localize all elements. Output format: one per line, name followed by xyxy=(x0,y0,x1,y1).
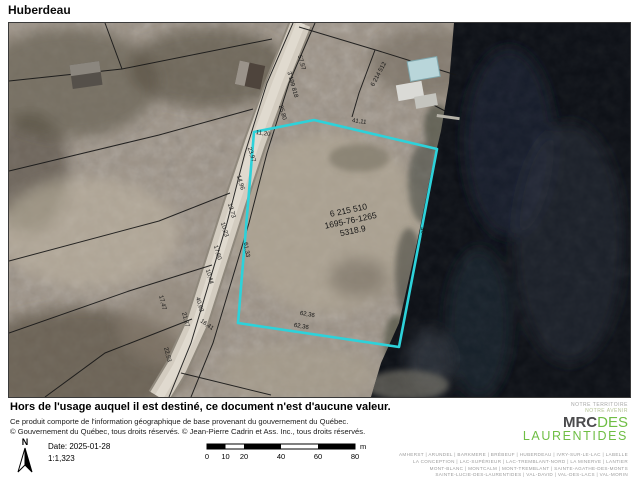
scalebar-tick: 0 xyxy=(205,452,209,461)
disclaimer-text: Hors de l'usage auquel il est destiné, c… xyxy=(10,401,391,413)
aerial-map: 6 215 510 1695-76-1265 5318.9 6 214 512 … xyxy=(9,23,630,397)
scalebar-tick: 80 xyxy=(351,452,359,461)
page-title: Huberdeau xyxy=(8,3,71,17)
municipality-line: AMHERST | ARUNDEL | BARKMERE | BRÉBEUF |… xyxy=(399,452,628,459)
credit-line-2: © Gouvernement du Québec, tous droits ré… xyxy=(10,427,365,437)
scalebar-unit: m xyxy=(360,442,366,451)
scalebar-tick: 10 xyxy=(221,452,229,461)
municipality-line: LA CONCEPTION | LAC-SUPÉRIEUR | LAC-TREM… xyxy=(399,459,628,466)
svg-text:N: N xyxy=(22,437,29,447)
logo-laurentides: LAURENTIDES xyxy=(399,430,628,443)
north-arrow-icon: N xyxy=(12,436,38,476)
scale-bar: 0 10 20 40 60 80 m xyxy=(205,440,375,464)
scalebar-tick: 20 xyxy=(240,452,248,461)
municipality-line: MONT-BLANC | MONTCALM | MONT-TREMBLANT |… xyxy=(399,466,628,473)
scalebar-tick: 60 xyxy=(314,452,322,461)
scale-ratio: 1:1,323 xyxy=(48,453,110,465)
municipality-list: AMHERST | ARUNDEL | BARKMERE | BRÉBEUF |… xyxy=(399,452,628,479)
credit-text: Ce produit comporte de l'information géo… xyxy=(10,417,365,436)
date-label: Date: 2025-01-28 xyxy=(48,441,110,453)
map-canvas: 6 215 510 1695-76-1265 5318.9 6 214 512 … xyxy=(8,22,631,398)
mrc-laurentides-logo: NOTRE TERRITOIRE NOTRE AVENIR MRCDES LAU… xyxy=(399,402,628,479)
municipality-line: SAINTE-LUCIE-DES-LAURENTIDES | VAL-DAVID… xyxy=(399,472,628,479)
scalebar-tick: 40 xyxy=(277,452,285,461)
map-print-page: { "title": "Huberdeau", "map": { "highli… xyxy=(0,0,640,480)
credit-line-1: Ce produit comporte de l'information géo… xyxy=(10,417,365,427)
map-info: Date: 2025-01-28 1:1,323 xyxy=(48,441,110,465)
logo-wordmark: MRCDES xyxy=(399,415,628,430)
